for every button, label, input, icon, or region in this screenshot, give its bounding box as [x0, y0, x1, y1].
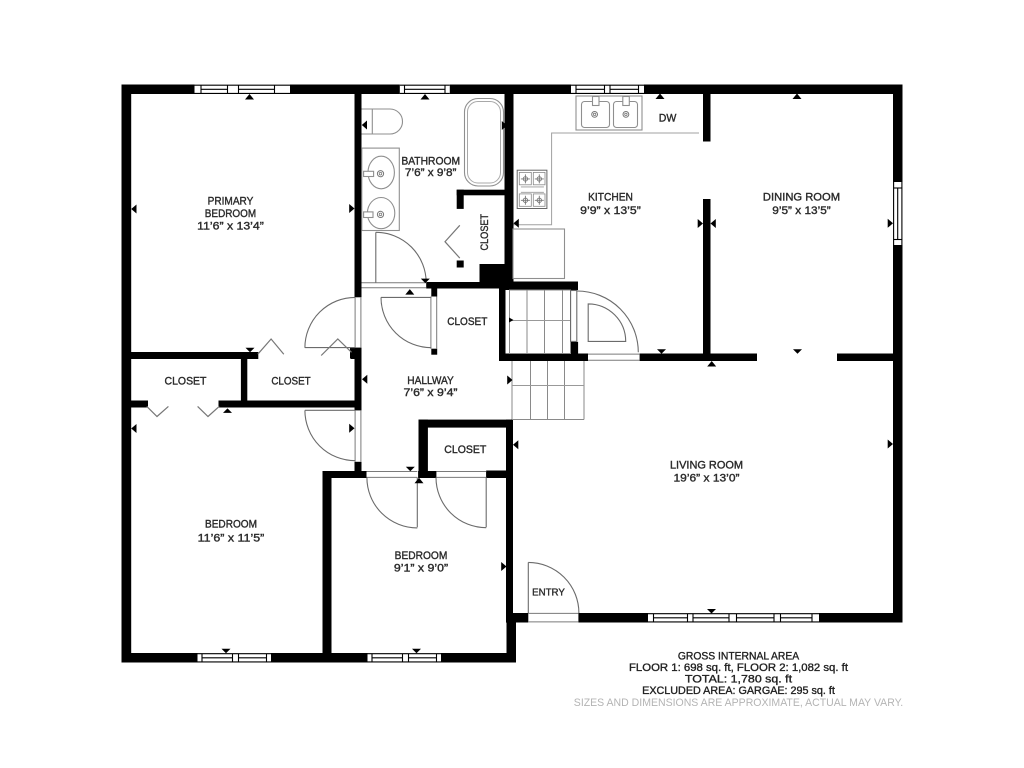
svg-text:DW: DW — [659, 112, 677, 124]
svg-text:BEDROOM: BEDROOM — [395, 550, 448, 562]
svg-text:TOTAL: 1,780 sq. ft: TOTAL: 1,780 sq. ft — [685, 673, 792, 685]
svg-text:BATHROOM: BATHROOM — [401, 155, 460, 167]
svg-text:9’5” x 13’5”: 9’5” x 13’5” — [772, 205, 831, 217]
svg-text:CLOSET: CLOSET — [444, 444, 486, 456]
svg-text:CLOSET: CLOSET — [165, 376, 207, 388]
svg-text:9’9” x 13’5”: 9’9” x 13’5” — [580, 205, 641, 217]
svg-text:FLOOR 1: 698 sq. ft, FLOOR 2:: FLOOR 1: 698 sq. ft, FLOOR 2: 1,082 sq. … — [629, 662, 848, 674]
svg-text:DINING ROOM: DINING ROOM — [763, 191, 840, 203]
svg-text:LIVING ROOM: LIVING ROOM — [670, 460, 743, 472]
svg-text:11’6” x 11’5”: 11’6” x 11’5” — [198, 532, 265, 544]
svg-text:11’6” x 13’4”: 11’6” x 13’4” — [197, 221, 264, 233]
svg-text:9’1” x 9’0”: 9’1” x 9’0” — [394, 563, 449, 575]
svg-text:CLOSET: CLOSET — [271, 376, 311, 388]
svg-text:BEDROOM: BEDROOM — [205, 519, 257, 531]
svg-text:19’6” x 13’0”: 19’6” x 13’0” — [674, 473, 740, 485]
svg-text:KITCHEN: KITCHEN — [588, 191, 633, 203]
svg-text:HALLWAY: HALLWAY — [407, 375, 454, 387]
svg-text:CLOSET: CLOSET — [479, 214, 491, 251]
svg-text:GROSS INTERNAL AREA: GROSS INTERNAL AREA — [678, 650, 800, 662]
svg-text:PRIMARY: PRIMARY — [208, 196, 254, 208]
svg-text:CLOSET: CLOSET — [447, 316, 487, 328]
svg-text:EXCLUDED AREA: GARGAE: 295 sq.: EXCLUDED AREA: GARGAE: 295 sq. ft — [642, 685, 835, 697]
svg-text:7’6” x 9’8”: 7’6” x 9’8” — [405, 167, 457, 179]
svg-text:SIZES AND DIMENSIONS ARE APPRO: SIZES AND DIMENSIONS ARE APPROXIMATE, AC… — [574, 697, 903, 709]
svg-text:ENTRY: ENTRY — [532, 587, 565, 598]
svg-text:7’6” x 9’4”: 7’6” x 9’4” — [404, 387, 458, 399]
svg-text:BEDROOM: BEDROOM — [205, 208, 256, 220]
